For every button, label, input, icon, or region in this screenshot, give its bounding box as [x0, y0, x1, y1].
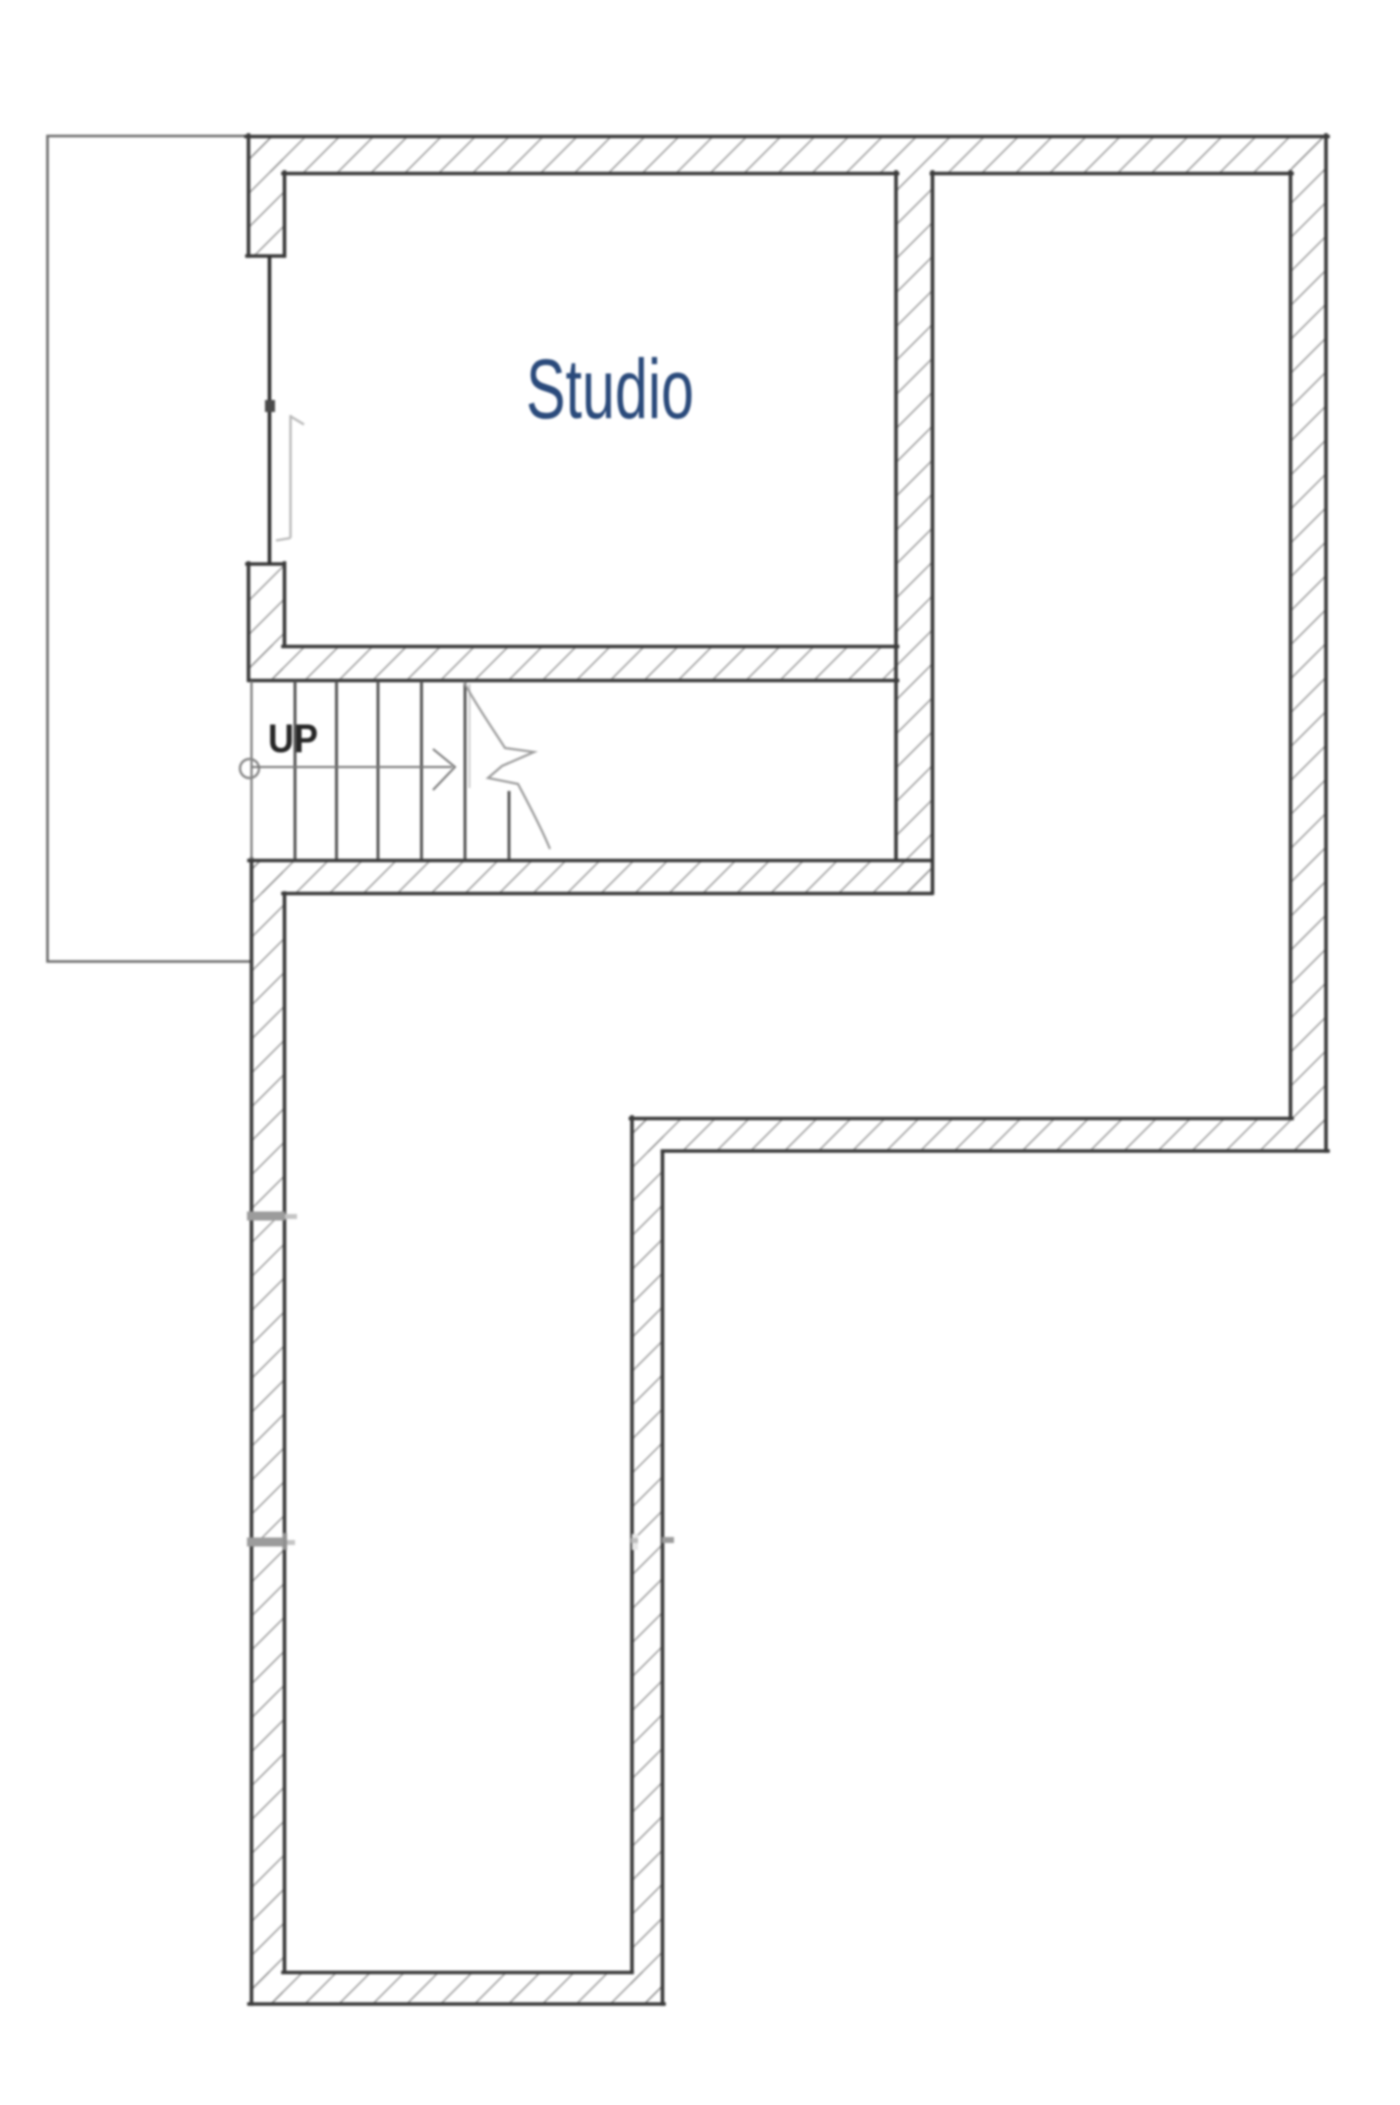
- svg-text:UP: UP: [268, 717, 318, 761]
- svg-text:Studio: Studio: [526, 342, 694, 436]
